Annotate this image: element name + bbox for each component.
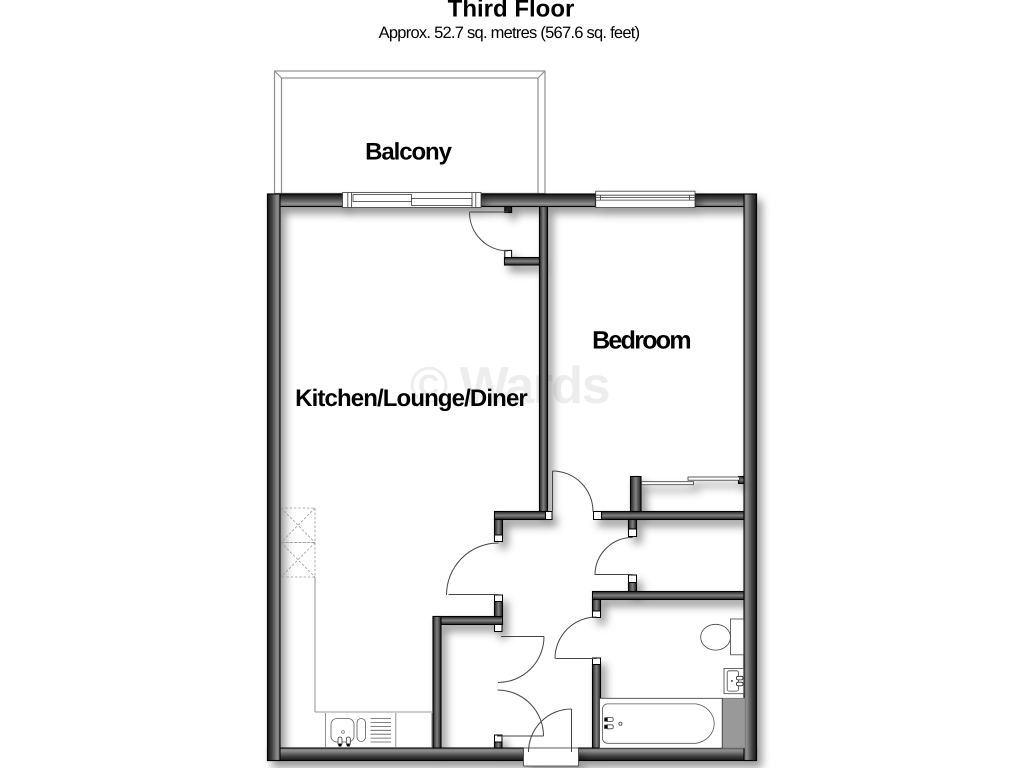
svg-text:Balcony: Balcony <box>365 139 452 166</box>
svg-text:Third Floor: Third Floor <box>448 0 575 23</box>
svg-text:Approx. 52.7 sq. metres (567.6: Approx. 52.7 sq. metres (567.6 sq. feet) <box>379 24 640 42</box>
svg-text:Kitchen/Lounge/Diner: Kitchen/Lounge/Diner <box>295 385 527 412</box>
svg-text:Bedroom: Bedroom <box>592 327 690 355</box>
